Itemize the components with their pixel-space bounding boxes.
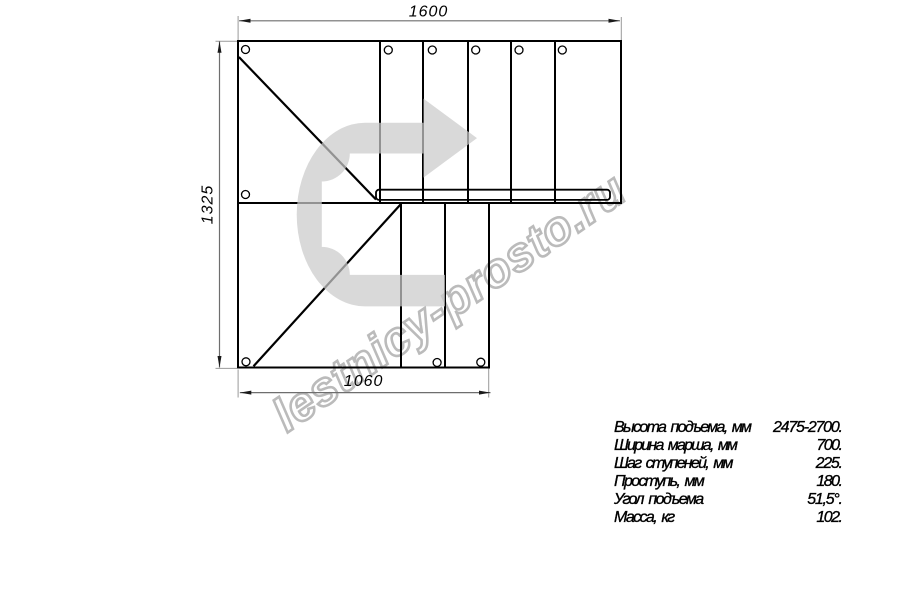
svg-text:2475-2700.: 2475-2700. — [772, 419, 843, 436]
svg-text:Угол подъема: Угол подъема — [613, 491, 704, 508]
svg-text:102.: 102. — [816, 509, 843, 526]
svg-text:180.: 180. — [816, 473, 843, 490]
svg-text:Шаг ступеней, мм: Шаг ступеней, мм — [614, 455, 734, 472]
svg-text:Ширина марша, мм: Ширина марша, мм — [614, 437, 738, 454]
svg-text:225.: 225. — [815, 455, 843, 472]
svg-text:51,5°.: 51,5°. — [807, 491, 843, 508]
svg-text:1060: 1060 — [344, 373, 384, 390]
svg-text:Масса, кг: Масса, кг — [614, 509, 675, 526]
svg-text:Проступь, мм: Проступь, мм — [614, 473, 705, 490]
svg-text:700.: 700. — [816, 437, 843, 454]
svg-text:1325: 1325 — [200, 185, 217, 225]
svg-text:Высота подъема, мм: Высота подъема, мм — [614, 419, 752, 436]
svg-text:1600: 1600 — [409, 4, 449, 21]
